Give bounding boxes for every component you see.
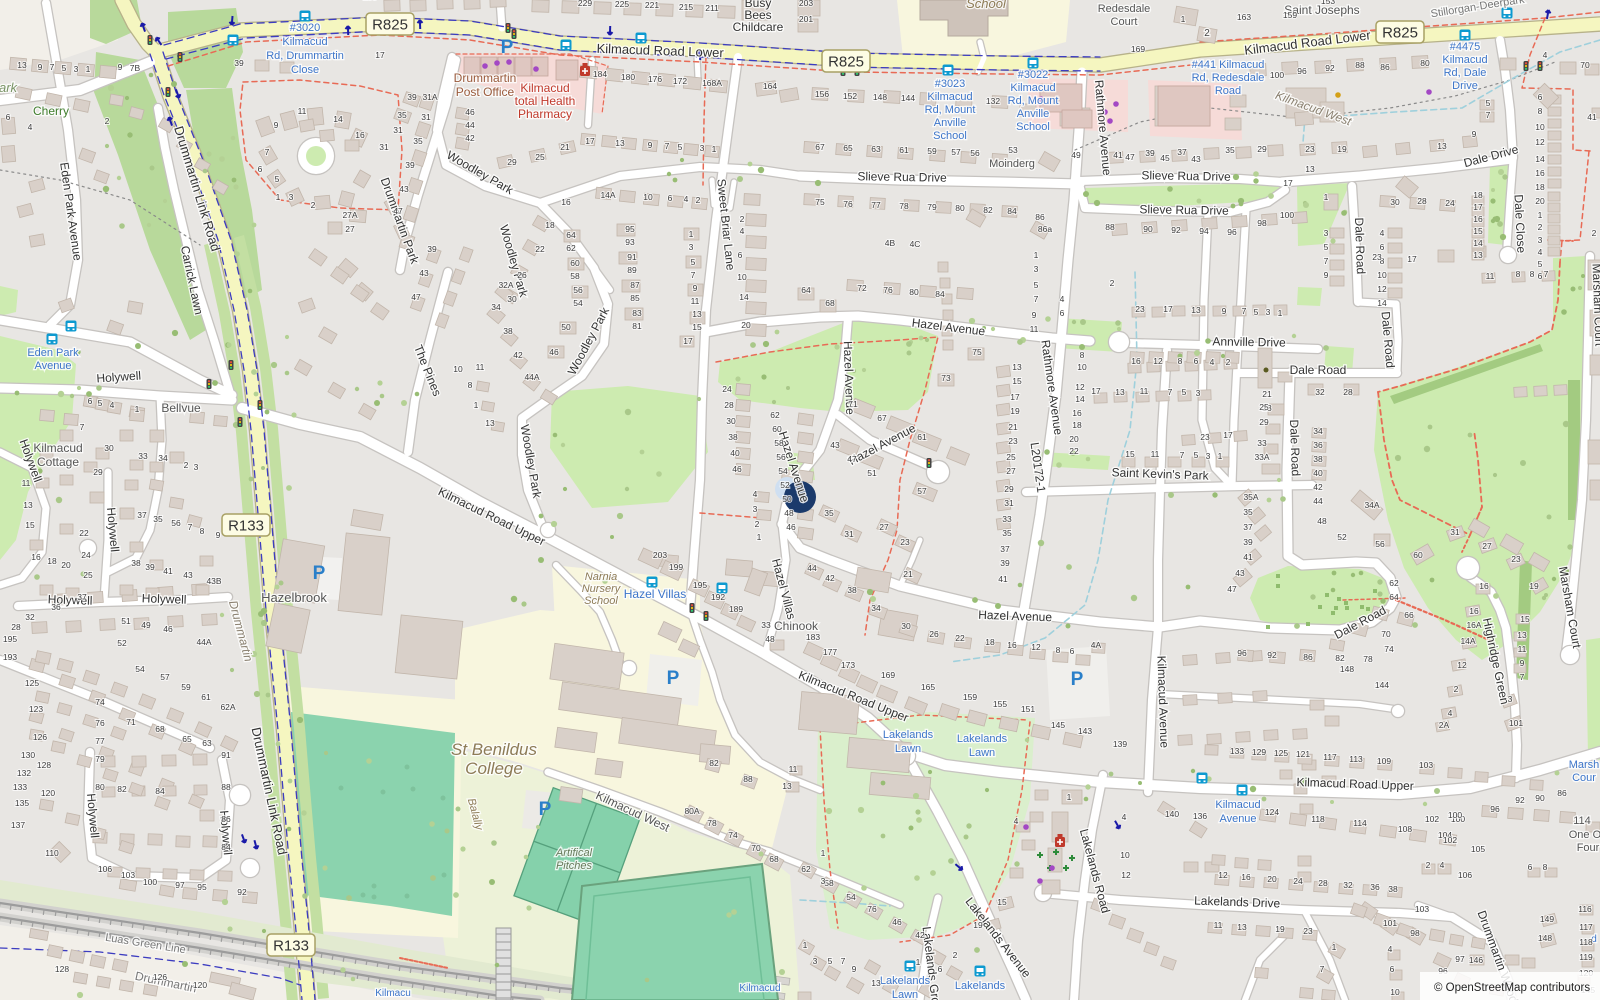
svg-text:221: 221 <box>645 0 659 10</box>
svg-text:101: 101 <box>1383 918 1397 928</box>
svg-text:31: 31 <box>421 112 431 122</box>
svg-text:10: 10 <box>1535 122 1545 132</box>
svg-text:201: 201 <box>799 14 813 24</box>
svg-text:6: 6 <box>88 396 93 406</box>
svg-text:124: 124 <box>1265 807 1279 817</box>
svg-text:Slieve Rua Drive: Slieve Rua Drive <box>857 169 947 185</box>
svg-text:Close: Close <box>291 64 319 76</box>
svg-text:102: 102 <box>1425 814 1439 824</box>
svg-text:Avenue: Avenue <box>1219 813 1256 825</box>
svg-text:16: 16 <box>1479 581 1489 591</box>
svg-text:22: 22 <box>79 528 89 538</box>
svg-text:4: 4 <box>110 400 115 410</box>
svg-text:Kilmacu: Kilmacu <box>375 988 411 999</box>
svg-text:7B: 7B <box>130 63 141 73</box>
svg-text:105: 105 <box>1471 844 1485 854</box>
svg-text:26: 26 <box>517 270 527 280</box>
svg-text:21: 21 <box>1262 389 1272 399</box>
svg-text:16: 16 <box>1007 640 1017 650</box>
svg-text:41: 41 <box>998 574 1008 584</box>
svg-text:1: 1 <box>1324 192 1329 202</box>
svg-text:89: 89 <box>627 265 637 275</box>
svg-text:2: 2 <box>184 460 189 470</box>
svg-text:17: 17 <box>1407 254 1417 264</box>
svg-text:97: 97 <box>175 880 185 890</box>
svg-text:2: 2 <box>755 519 760 529</box>
svg-text:Four: Four <box>1577 842 1600 854</box>
svg-text:6: 6 <box>938 964 943 974</box>
svg-text:92: 92 <box>1515 795 1525 805</box>
svg-text:92: 92 <box>1325 63 1335 73</box>
svg-text:68: 68 <box>769 854 779 864</box>
svg-text:18: 18 <box>985 637 995 647</box>
svg-text:One On: One On <box>1569 829 1600 841</box>
svg-text:86: 86 <box>1035 212 1045 222</box>
svg-text:168A: 168A <box>702 78 722 88</box>
svg-text:Hazel Villas: Hazel Villas <box>624 587 686 601</box>
svg-text:126: 126 <box>153 972 167 982</box>
svg-text:4: 4 <box>1538 247 1543 257</box>
svg-text:3: 3 <box>74 64 79 74</box>
svg-text:136: 136 <box>1193 811 1207 821</box>
svg-text:1: 1 <box>1181 14 1186 24</box>
svg-text:116: 116 <box>1578 904 1592 914</box>
svg-text:22: 22 <box>535 244 545 254</box>
svg-text:1: 1 <box>803 940 808 950</box>
svg-text:7: 7 <box>691 270 696 280</box>
svg-text:19: 19 <box>1275 924 1285 934</box>
svg-text:43: 43 <box>1235 568 1245 578</box>
svg-text:108: 108 <box>1398 824 1412 834</box>
svg-text:21: 21 <box>560 142 570 152</box>
svg-text:84: 84 <box>1007 206 1017 216</box>
svg-text:64: 64 <box>1389 592 1399 602</box>
svg-text:17: 17 <box>1283 178 1293 188</box>
svg-text:8: 8 <box>1516 269 1521 279</box>
svg-text:37: 37 <box>1243 522 1253 532</box>
svg-text:Avenue: Avenue <box>34 360 71 372</box>
svg-text:Drummartin: Drummartin <box>454 71 517 85</box>
svg-text:70: 70 <box>1381 629 1391 639</box>
svg-text:57: 57 <box>160 672 170 682</box>
svg-text:13: 13 <box>1191 305 1201 315</box>
svg-text:6: 6 <box>668 193 673 203</box>
svg-text:11: 11 <box>1151 449 1160 459</box>
svg-text:30: 30 <box>507 294 517 304</box>
svg-text:54: 54 <box>846 892 856 902</box>
svg-text:17: 17 <box>1223 430 1233 440</box>
svg-text:152: 152 <box>843 91 857 101</box>
svg-text:30: 30 <box>726 416 736 426</box>
svg-text:80: 80 <box>909 287 919 297</box>
svg-text:135: 135 <box>15 798 29 808</box>
svg-text:Lakelands: Lakelands <box>883 729 934 741</box>
svg-text:Holywell: Holywell <box>142 591 187 607</box>
svg-text:5: 5 <box>1324 242 1329 252</box>
svg-text:Eden Park: Eden Park <box>27 347 79 359</box>
svg-text:#4475: #4475 <box>1450 41 1481 53</box>
svg-text:23: 23 <box>900 537 910 547</box>
svg-text:61: 61 <box>917 432 927 442</box>
svg-text:3: 3 <box>700 143 705 153</box>
svg-text:43: 43 <box>399 184 409 194</box>
svg-text:169: 169 <box>881 670 895 680</box>
svg-text:62: 62 <box>801 864 811 874</box>
svg-text:Lakelands: Lakelands <box>955 980 1006 992</box>
svg-text:60: 60 <box>772 424 782 434</box>
svg-text:Pharmacy: Pharmacy <box>518 107 572 121</box>
svg-text:25: 25 <box>1259 402 1269 412</box>
svg-text:225: 225 <box>615 0 629 9</box>
svg-text:Bellvue: Bellvue <box>161 401 201 415</box>
svg-text:9: 9 <box>1520 658 1525 668</box>
svg-text:34: 34 <box>1313 426 1323 436</box>
svg-text:2: 2 <box>1110 278 1115 288</box>
svg-text:20: 20 <box>1535 196 1545 206</box>
svg-text:17: 17 <box>375 50 385 60</box>
svg-text:100: 100 <box>1448 810 1462 820</box>
svg-text:total Health: total Health <box>515 94 576 108</box>
svg-text:102: 102 <box>1443 835 1457 845</box>
svg-text:6: 6 <box>258 164 263 174</box>
svg-text:65: 65 <box>843 143 853 153</box>
svg-text:R133: R133 <box>228 518 264 535</box>
svg-text:20: 20 <box>1267 874 1277 884</box>
svg-text:60: 60 <box>570 258 580 268</box>
svg-text:156: 156 <box>815 89 829 99</box>
svg-text:2: 2 <box>953 950 958 960</box>
svg-text:43: 43 <box>830 440 840 450</box>
svg-text:106: 106 <box>1458 870 1472 880</box>
svg-text:13: 13 <box>692 309 702 319</box>
svg-text:184: 184 <box>593 69 607 79</box>
svg-text:80A: 80A <box>684 806 699 816</box>
svg-text:#441 Kilmacud: #441 Kilmacud <box>1192 59 1265 71</box>
svg-text:Dale Road: Dale Road <box>1290 363 1347 377</box>
svg-text:5: 5 <box>98 398 103 408</box>
svg-text:Post Office: Post Office <box>456 85 515 99</box>
svg-text:203: 203 <box>799 0 813 8</box>
svg-text:11: 11 <box>1214 920 1223 930</box>
svg-text:23: 23 <box>1200 432 1210 442</box>
svg-text:18: 18 <box>47 556 57 566</box>
svg-text:24: 24 <box>81 550 91 560</box>
svg-text:117: 117 <box>1579 922 1593 932</box>
svg-text:7: 7 <box>188 522 193 532</box>
svg-text:48: 48 <box>784 508 794 518</box>
svg-text:125: 125 <box>25 678 39 688</box>
svg-text:77: 77 <box>871 200 881 210</box>
svg-text:8: 8 <box>1530 269 1535 279</box>
svg-text:13: 13 <box>17 60 27 70</box>
svg-text:10: 10 <box>1120 850 1130 860</box>
svg-text:81: 81 <box>632 321 642 331</box>
svg-text:140: 140 <box>1165 809 1179 819</box>
svg-text:Lakelands: Lakelands <box>880 975 931 987</box>
svg-text:60: 60 <box>1413 550 1423 560</box>
svg-text:155: 155 <box>993 699 1007 709</box>
svg-text:15: 15 <box>1012 376 1022 386</box>
svg-text:28: 28 <box>1318 878 1328 888</box>
svg-text:Cour: Cour <box>1572 772 1596 784</box>
svg-text:76: 76 <box>95 718 105 728</box>
svg-text:159: 159 <box>1283 10 1297 20</box>
svg-text:132: 132 <box>986 96 1000 106</box>
svg-text:29: 29 <box>1257 144 1267 154</box>
svg-text:35: 35 <box>153 514 163 524</box>
svg-text:5: 5 <box>62 63 67 73</box>
svg-text:Kilmacud: Kilmacud <box>282 36 327 48</box>
svg-text:139: 139 <box>1113 739 1127 749</box>
svg-text:#3022: #3022 <box>1018 69 1049 81</box>
svg-text:4C: 4C <box>910 239 921 249</box>
svg-text:7: 7 <box>1486 110 1491 120</box>
svg-text:78: 78 <box>1363 654 1373 664</box>
svg-text:23: 23 <box>1135 304 1145 314</box>
svg-text:Lakelands: Lakelands <box>957 733 1008 745</box>
svg-text:98: 98 <box>1257 218 1267 228</box>
svg-text:32: 32 <box>25 612 35 622</box>
svg-text:R825: R825 <box>828 54 864 71</box>
svg-text:35: 35 <box>824 508 834 518</box>
svg-text:15: 15 <box>692 322 702 332</box>
svg-text:41: 41 <box>1113 150 1123 160</box>
svg-text:Kilmacud: Kilmacud <box>927 91 972 103</box>
svg-text:School: School <box>966 0 1007 11</box>
svg-text:1: 1 <box>689 229 694 239</box>
svg-text:67: 67 <box>815 142 825 152</box>
svg-text:70: 70 <box>1580 60 1590 70</box>
svg-text:20: 20 <box>741 320 751 330</box>
svg-text:9: 9 <box>216 530 221 540</box>
svg-text:31: 31 <box>1004 498 1014 508</box>
svg-text:2: 2 <box>1204 28 1210 39</box>
svg-text:16: 16 <box>561 197 571 207</box>
svg-text:28: 28 <box>1417 196 1427 206</box>
svg-text:11: 11 <box>1518 644 1527 654</box>
svg-text:Dale Road: Dale Road <box>1352 217 1368 274</box>
svg-text:11: 11 <box>1140 386 1149 396</box>
svg-text:Rd, Drummartin: Rd, Drummartin <box>266 50 344 62</box>
svg-text:30: 30 <box>1390 197 1400 207</box>
svg-text:22: 22 <box>955 633 965 643</box>
svg-text:5: 5 <box>1538 259 1543 269</box>
svg-text:195: 195 <box>3 634 17 644</box>
svg-text:44: 44 <box>465 120 475 130</box>
svg-text:7: 7 <box>1242 306 1247 316</box>
svg-text:52: 52 <box>780 480 790 490</box>
svg-text:30: 30 <box>104 443 114 453</box>
svg-text:15: 15 <box>997 897 1007 907</box>
svg-text:3: 3 <box>689 242 694 252</box>
svg-text:31: 31 <box>393 125 403 135</box>
svg-text:42: 42 <box>465 133 475 143</box>
svg-text:63: 63 <box>202 738 212 748</box>
svg-text:13: 13 <box>1305 164 1315 174</box>
svg-text:43: 43 <box>419 268 429 278</box>
svg-text:8: 8 <box>200 526 205 536</box>
svg-text:9: 9 <box>648 140 653 150</box>
svg-text:P: P <box>501 37 514 58</box>
svg-text:1: 1 <box>86 64 91 74</box>
svg-text:12: 12 <box>1457 660 1467 670</box>
svg-text:7: 7 <box>1320 964 1325 974</box>
svg-text:5: 5 <box>678 142 683 152</box>
svg-text:149: 149 <box>1540 914 1554 924</box>
svg-text:133: 133 <box>1230 746 1244 756</box>
svg-text:Kilmacud: Kilmacud <box>739 983 780 994</box>
svg-text:1: 1 <box>135 404 140 414</box>
svg-text:49: 49 <box>1071 150 1081 160</box>
svg-text:13: 13 <box>23 500 33 510</box>
svg-text:35: 35 <box>397 110 407 120</box>
svg-text:2: 2 <box>696 195 701 205</box>
svg-text:Kilmacud: Kilmacud <box>1215 799 1260 811</box>
svg-text:9: 9 <box>38 62 43 72</box>
svg-text:74: 74 <box>95 697 105 707</box>
svg-text:19: 19 <box>1337 144 1347 154</box>
svg-text:8: 8 <box>1543 862 1548 872</box>
svg-text:15: 15 <box>1473 226 1483 236</box>
svg-text:57: 57 <box>917 486 927 496</box>
svg-text:11: 11 <box>1030 324 1039 334</box>
svg-text:74: 74 <box>728 830 738 840</box>
svg-text:49: 49 <box>141 620 151 630</box>
svg-text:23: 23 <box>1303 926 1313 936</box>
svg-text:7: 7 <box>50 62 55 72</box>
svg-text:13: 13 <box>485 418 495 428</box>
svg-text:42: 42 <box>513 350 523 360</box>
svg-text:Rd, Redesdale: Rd, Redesdale <box>1192 72 1265 84</box>
svg-text:151: 151 <box>1021 704 1035 714</box>
svg-text:203: 203 <box>653 550 667 560</box>
svg-text:#3023: #3023 <box>935 78 966 90</box>
svg-text:1: 1 <box>1538 210 1543 220</box>
svg-text:85: 85 <box>630 293 640 303</box>
svg-text:19: 19 <box>1010 406 1020 416</box>
svg-text:189: 189 <box>729 604 743 614</box>
svg-text:145: 145 <box>1051 720 1065 730</box>
svg-text:64: 64 <box>566 230 576 240</box>
svg-text:34: 34 <box>158 453 168 463</box>
svg-text:11: 11 <box>691 296 700 306</box>
svg-text:106: 106 <box>98 864 112 874</box>
svg-text:25: 25 <box>1006 452 1016 462</box>
svg-text:42: 42 <box>1313 482 1323 492</box>
svg-text:16: 16 <box>1241 872 1251 882</box>
svg-text:41: 41 <box>163 566 173 576</box>
svg-text:14: 14 <box>1535 154 1545 164</box>
svg-text:39: 39 <box>407 92 417 102</box>
svg-text:84: 84 <box>935 289 945 299</box>
svg-text:123: 123 <box>29 704 43 714</box>
svg-text:1: 1 <box>1278 308 1283 318</box>
svg-text:6: 6 <box>6 112 11 122</box>
svg-text:39: 39 <box>1243 537 1253 547</box>
svg-text:10: 10 <box>1377 270 1387 280</box>
svg-text:68: 68 <box>155 724 165 734</box>
svg-text:9: 9 <box>1222 306 1227 316</box>
svg-text:5: 5 <box>691 257 696 267</box>
svg-text:17: 17 <box>1010 392 1020 402</box>
svg-text:4: 4 <box>684 194 689 204</box>
svg-text:36: 36 <box>1370 882 1380 892</box>
svg-text:13: 13 <box>782 781 792 791</box>
svg-text:180: 180 <box>621 72 635 82</box>
svg-text:110: 110 <box>45 848 59 858</box>
svg-text:91: 91 <box>221 750 231 760</box>
svg-text:43: 43 <box>1191 154 1201 164</box>
svg-text:28: 28 <box>11 622 21 632</box>
svg-text:1: 1 <box>1332 942 1337 952</box>
svg-text:27A: 27A <box>342 210 357 220</box>
svg-text:29: 29 <box>93 467 103 477</box>
svg-text:70: 70 <box>751 843 761 853</box>
svg-text:82: 82 <box>983 205 993 215</box>
svg-text:2: 2 <box>1454 684 1459 694</box>
svg-text:7: 7 <box>841 956 846 966</box>
svg-text:76: 76 <box>843 199 853 209</box>
svg-text:7: 7 <box>1034 294 1039 304</box>
svg-text:82: 82 <box>117 784 127 794</box>
svg-text:31: 31 <box>844 529 854 539</box>
svg-text:3: 3 <box>813 956 818 966</box>
svg-text:86: 86 <box>1380 62 1390 72</box>
svg-text:9: 9 <box>1032 310 1037 320</box>
svg-text:62A: 62A <box>220 702 235 712</box>
svg-text:75: 75 <box>972 347 982 357</box>
svg-text:62: 62 <box>1389 578 1399 588</box>
svg-text:22: 22 <box>1069 446 1079 456</box>
svg-text:143: 143 <box>1078 726 1092 736</box>
svg-text:37: 37 <box>1000 544 1010 554</box>
svg-text:86: 86 <box>221 814 231 824</box>
svg-text:57: 57 <box>951 147 961 157</box>
svg-text:7: 7 <box>1324 256 1329 266</box>
svg-text:18: 18 <box>1072 420 1082 430</box>
svg-text:17: 17 <box>1091 386 1101 396</box>
svg-text:© OpenStreetMap contributors: © OpenStreetMap contributors <box>1434 982 1590 994</box>
svg-text:13: 13 <box>1115 387 1125 397</box>
svg-text:87: 87 <box>630 280 640 290</box>
svg-text:58: 58 <box>774 438 784 448</box>
svg-text:3: 3 <box>289 192 294 202</box>
svg-text:61: 61 <box>899 145 909 155</box>
svg-text:15: 15 <box>1520 614 1530 624</box>
svg-text:3: 3 <box>1196 388 1201 398</box>
svg-text:35: 35 <box>1243 507 1253 517</box>
svg-text:8: 8 <box>468 380 473 390</box>
svg-text:39: 39 <box>1145 148 1155 158</box>
svg-text:44A: 44A <box>524 372 539 382</box>
svg-text:Marsh: Marsh <box>1569 759 1600 771</box>
svg-text:Anville: Anville <box>934 117 966 129</box>
svg-text:40: 40 <box>1313 468 1323 478</box>
svg-text:76: 76 <box>867 904 877 914</box>
svg-text:79: 79 <box>927 202 937 212</box>
svg-text:144: 144 <box>901 93 915 103</box>
svg-text:14: 14 <box>1377 298 1387 308</box>
svg-text:12: 12 <box>1031 642 1041 652</box>
svg-text:34: 34 <box>871 603 881 613</box>
svg-text:96: 96 <box>1490 804 1500 814</box>
svg-text:5: 5 <box>275 174 280 184</box>
svg-text:10: 10 <box>643 192 653 202</box>
svg-text:74: 74 <box>1384 644 1394 654</box>
svg-text:1: 1 <box>1067 792 1072 802</box>
svg-text:2: 2 <box>105 116 110 126</box>
svg-text:7: 7 <box>265 147 270 157</box>
